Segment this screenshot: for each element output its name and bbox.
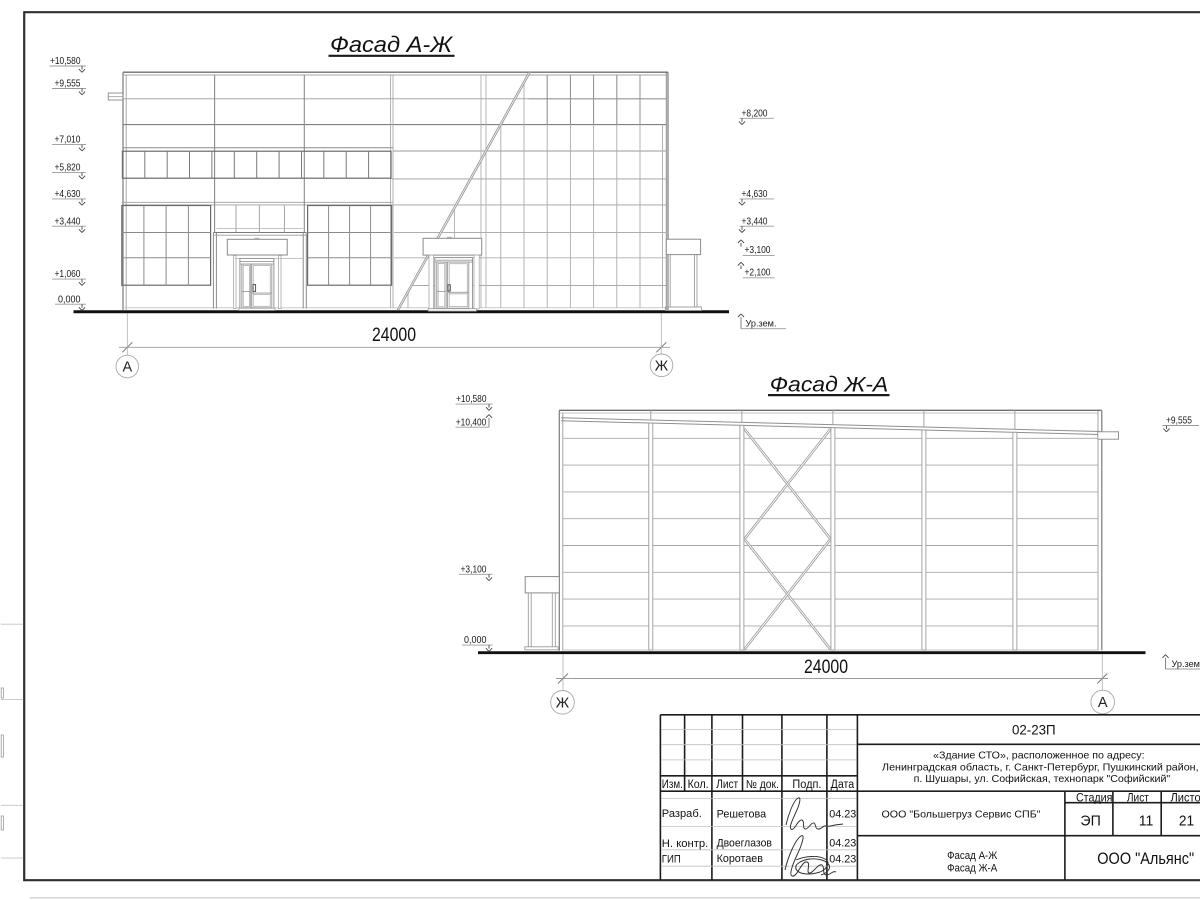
svg-text:+10,580: +10,580 xyxy=(50,56,81,67)
svg-text:+4,630: +4,630 xyxy=(742,189,768,200)
svg-text:02-23П: 02-23П xyxy=(1012,721,1056,737)
svg-text:«Здание СТО», расположенное по: «Здание СТО», расположенное по адресу: xyxy=(933,751,1145,762)
svg-text:Листов: Листов xyxy=(1171,790,1200,804)
svg-text:04.23: 04.23 xyxy=(829,808,856,820)
svg-text:+7,010: +7,010 xyxy=(55,135,81,146)
svg-text:04.23: 04.23 xyxy=(829,838,856,850)
svg-text:04.23: 04.23 xyxy=(829,853,856,865)
svg-text:+8,200: +8,200 xyxy=(742,108,768,119)
svg-text:+9,555: +9,555 xyxy=(55,79,81,90)
svg-text:Ж: Ж xyxy=(556,696,570,712)
svg-text:+5,820: +5,820 xyxy=(55,163,81,174)
svg-text:Коротаев: Коротаев xyxy=(717,853,764,865)
svg-text:+10,400: +10,400 xyxy=(456,417,487,428)
svg-text:А: А xyxy=(122,360,132,376)
svg-text:Решетова: Решетова xyxy=(717,808,767,820)
svg-text:Ур.зем.: Ур.зем. xyxy=(746,319,777,329)
svg-text:Фасад А-Ж: Фасад А-Ж xyxy=(330,32,454,57)
svg-text:21: 21 xyxy=(1179,812,1194,829)
svg-text:Разраб.: Разраб. xyxy=(662,808,702,820)
svg-text:Ур.зем.: Ур.зем. xyxy=(1172,659,1200,669)
svg-text:Кол.: Кол. xyxy=(688,779,709,791)
svg-text:+9,555: +9,555 xyxy=(1166,416,1192,427)
svg-text:ЭП: ЭП xyxy=(1080,812,1100,829)
svg-text:Дата: Дата xyxy=(831,779,855,791)
svg-text:+1,060: +1,060 xyxy=(55,269,81,280)
svg-text:+2,100: +2,100 xyxy=(745,268,771,279)
svg-text:Лист: Лист xyxy=(1127,790,1149,804)
svg-text:Двоеглазов: Двоеглазов xyxy=(717,838,772,850)
svg-text:№ док.: № док. xyxy=(746,779,779,791)
svg-text:ГИП: ГИП xyxy=(662,853,681,865)
svg-text:+3,440: +3,440 xyxy=(742,216,768,227)
svg-text:24000: 24000 xyxy=(372,325,416,346)
svg-text:Ленинградская область, г. Санк: Ленинградская область, г. Санкт-Петербур… xyxy=(882,761,1199,773)
svg-text:0,000: 0,000 xyxy=(464,635,487,646)
svg-text:ООО "Альянс": ООО "Альянс" xyxy=(1097,850,1194,868)
svg-text:11: 11 xyxy=(1139,812,1154,829)
svg-text:0,000: 0,000 xyxy=(58,294,81,305)
svg-text:Изм.: Изм. xyxy=(662,779,683,791)
svg-text:Лист: Лист xyxy=(716,779,739,791)
svg-text:Фасад А-Ж: Фасад А-Ж xyxy=(947,850,997,862)
svg-text:Стадия: Стадия xyxy=(1076,790,1113,804)
svg-text:+3,100: +3,100 xyxy=(461,564,487,575)
svg-text:+3,100: +3,100 xyxy=(745,245,771,256)
svg-text:+3,440: +3,440 xyxy=(55,216,81,227)
svg-text:Н. контр.: Н. контр. xyxy=(662,838,709,850)
svg-text:Фасад Ж-А: Фасад Ж-А xyxy=(947,862,998,874)
svg-text:+10,580: +10,580 xyxy=(456,394,487,405)
svg-text:ООО "Большегруз Сервис СПБ": ООО "Большегруз Сервис СПБ" xyxy=(882,808,1041,820)
svg-text:п. Шушары, ул. Софийская, техн: п. Шушары, ул. Софийская, технопарк "Соф… xyxy=(914,773,1171,785)
svg-text:А: А xyxy=(1098,695,1108,711)
svg-text:Подп.: Подп. xyxy=(792,779,821,791)
svg-text:+4,630: +4,630 xyxy=(55,189,81,200)
svg-text:24000: 24000 xyxy=(804,657,848,678)
svg-text:Фасад Ж-А: Фасад Ж-А xyxy=(770,374,888,397)
svg-text:Ж: Ж xyxy=(655,359,669,375)
